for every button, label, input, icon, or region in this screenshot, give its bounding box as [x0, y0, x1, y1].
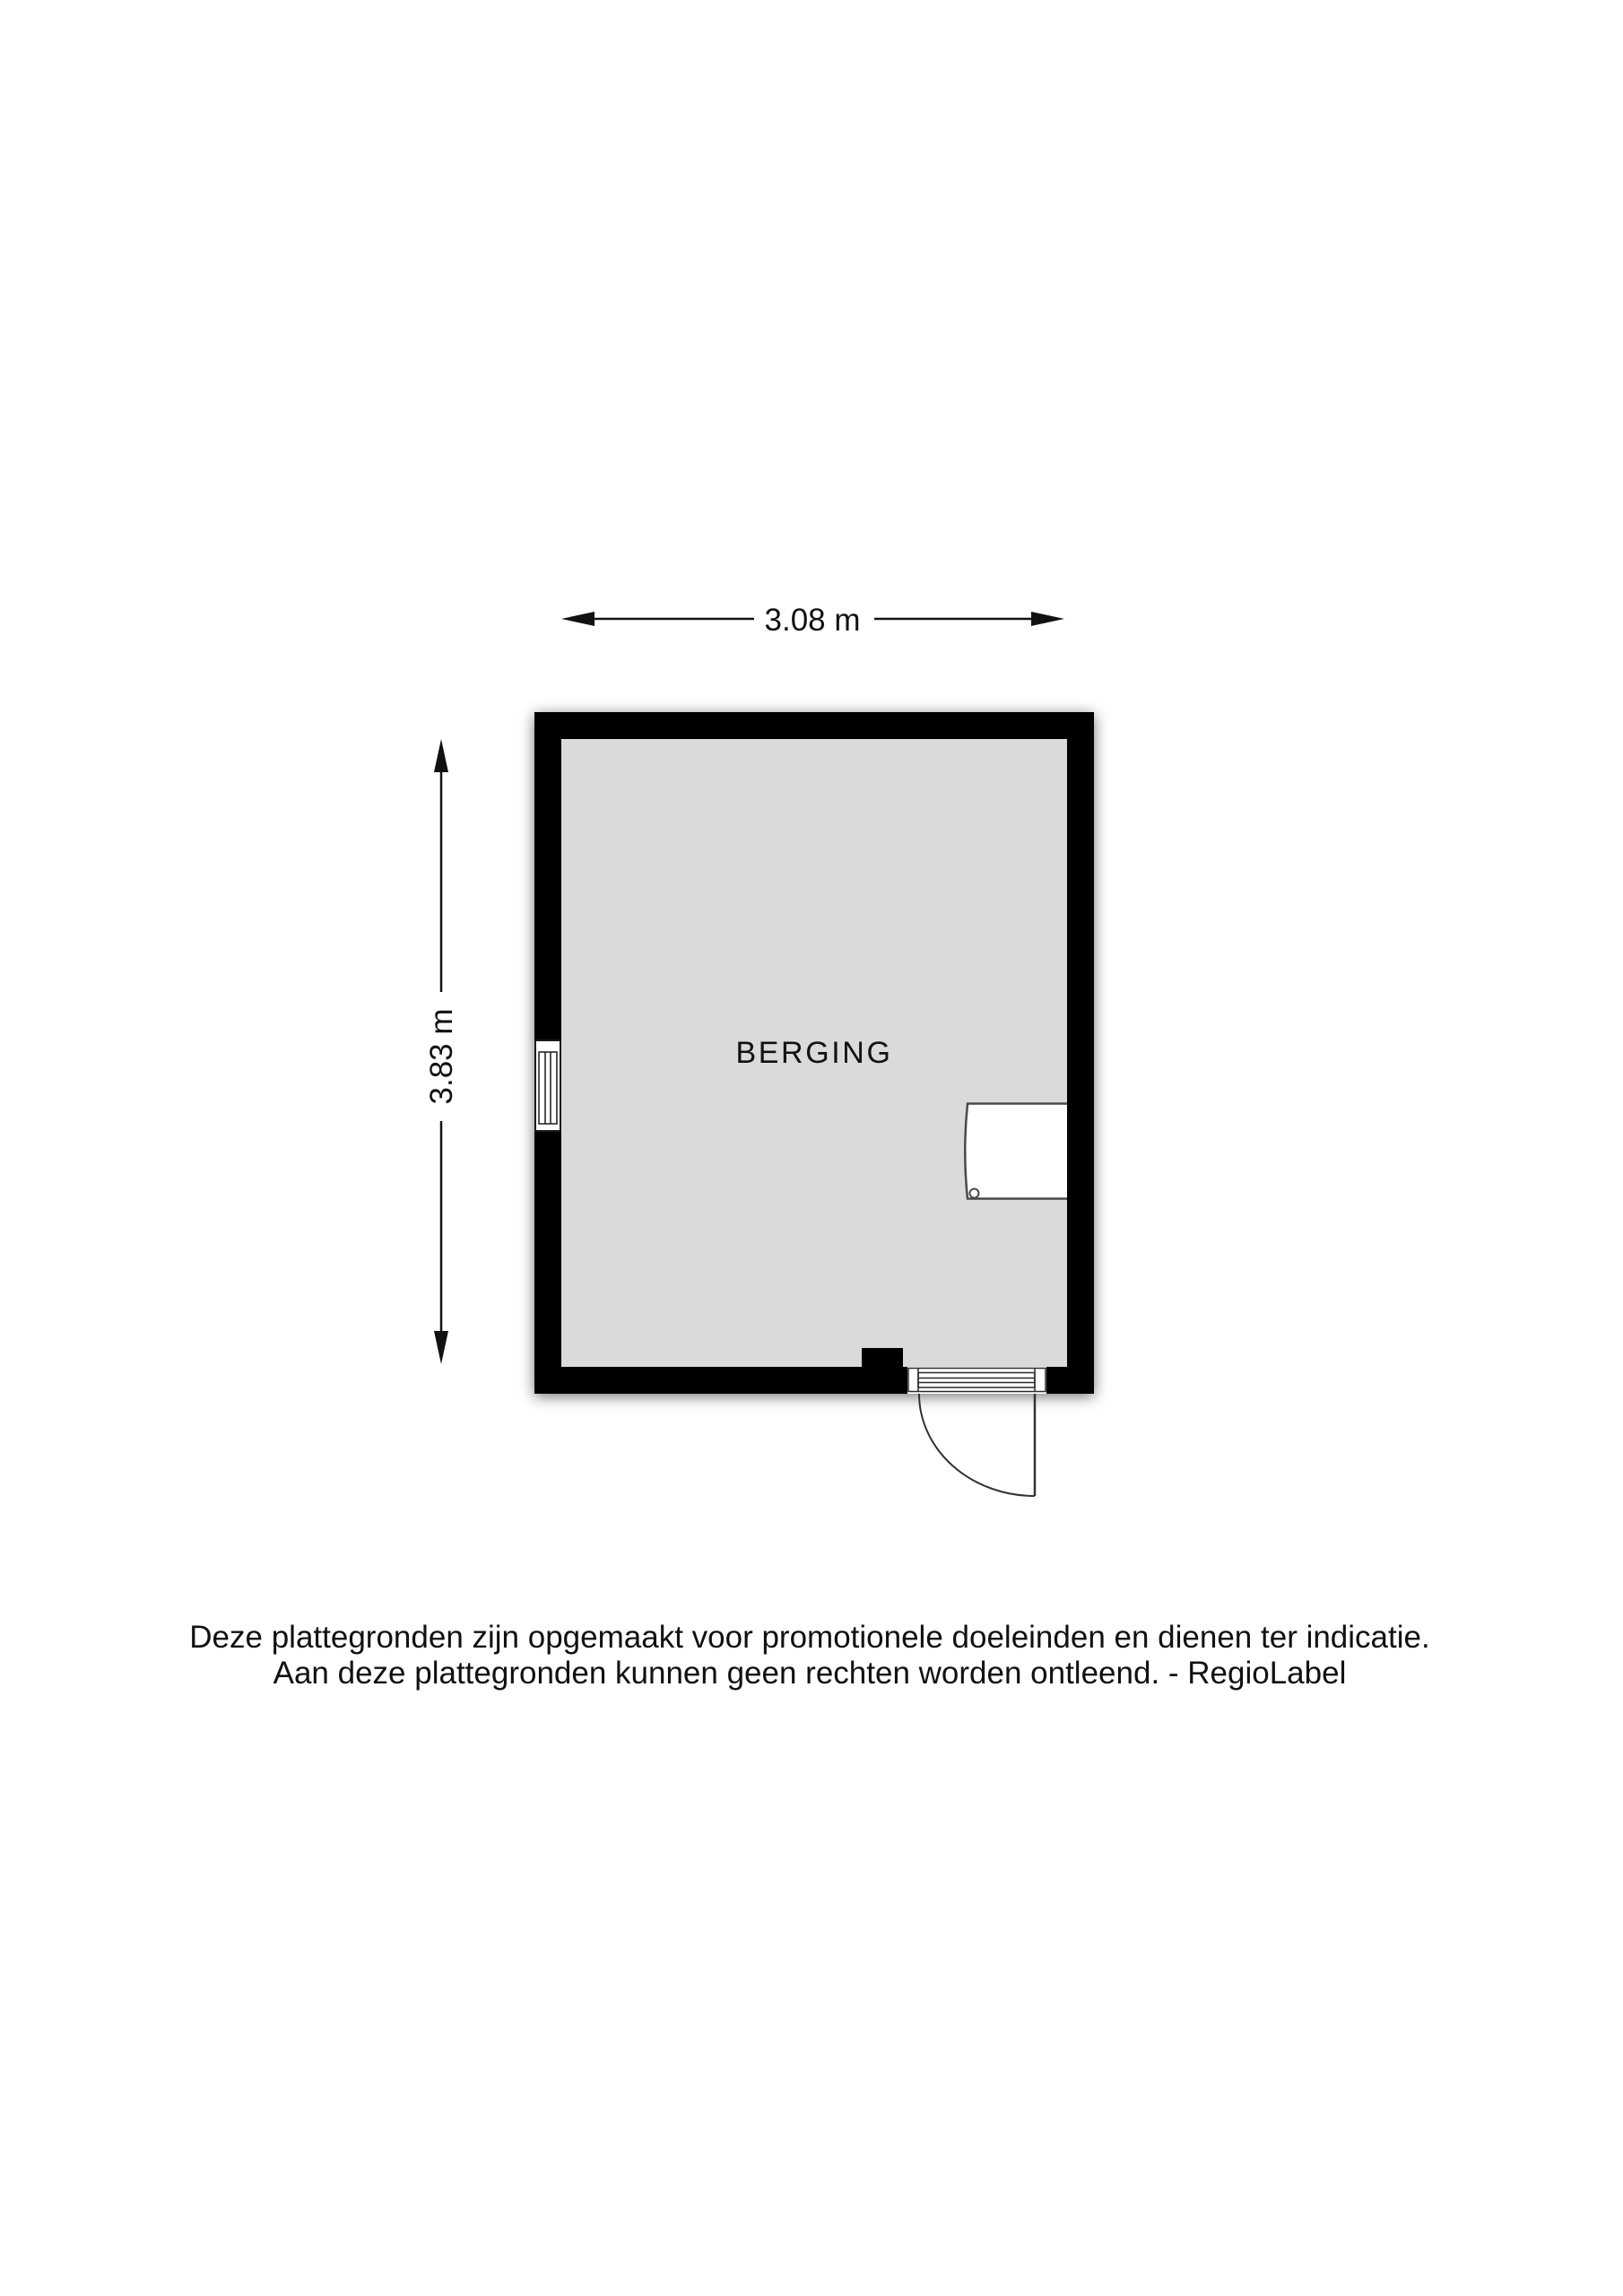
svg-text:Aan deze plattegronden kunnen: Aan deze plattegronden kunnen geen recht… — [273, 1656, 1347, 1691]
svg-text:Deze plattegronden zijn opgema: Deze plattegronden zijn opgemaakt voor p… — [189, 1620, 1429, 1655]
svg-text:BERGING: BERGING — [735, 1036, 892, 1070]
svg-text:3.08 m: 3.08 m — [765, 603, 861, 638]
svg-text:3.83 m: 3.83 m — [424, 1009, 459, 1105]
